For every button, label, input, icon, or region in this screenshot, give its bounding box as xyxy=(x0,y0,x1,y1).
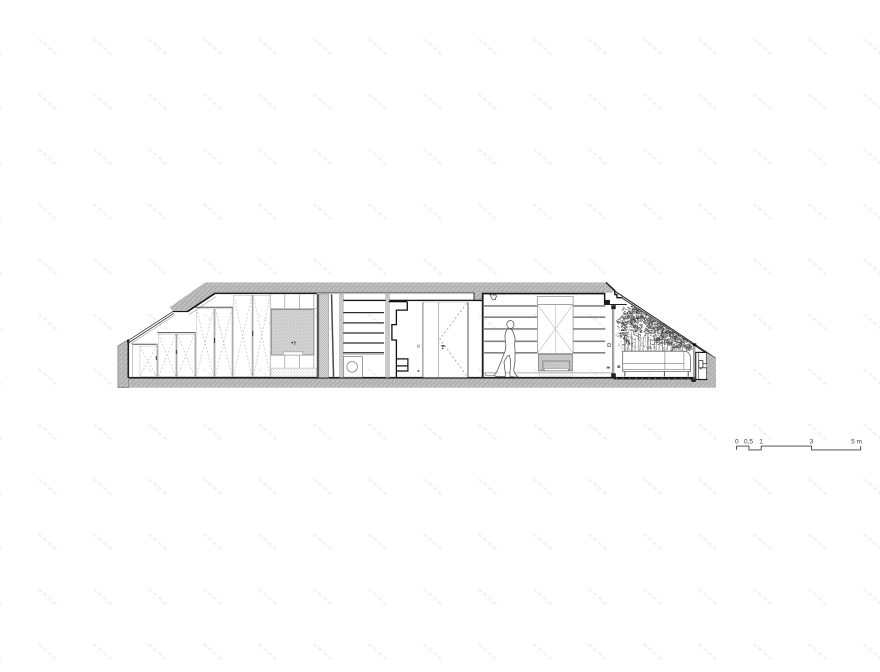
svg-text:5 m: 5 m xyxy=(851,439,862,446)
svg-text:3: 3 xyxy=(809,439,813,446)
svg-text:0,5: 0,5 xyxy=(744,439,753,446)
svg-text:0: 0 xyxy=(735,439,739,446)
svg-text:1: 1 xyxy=(759,439,763,446)
